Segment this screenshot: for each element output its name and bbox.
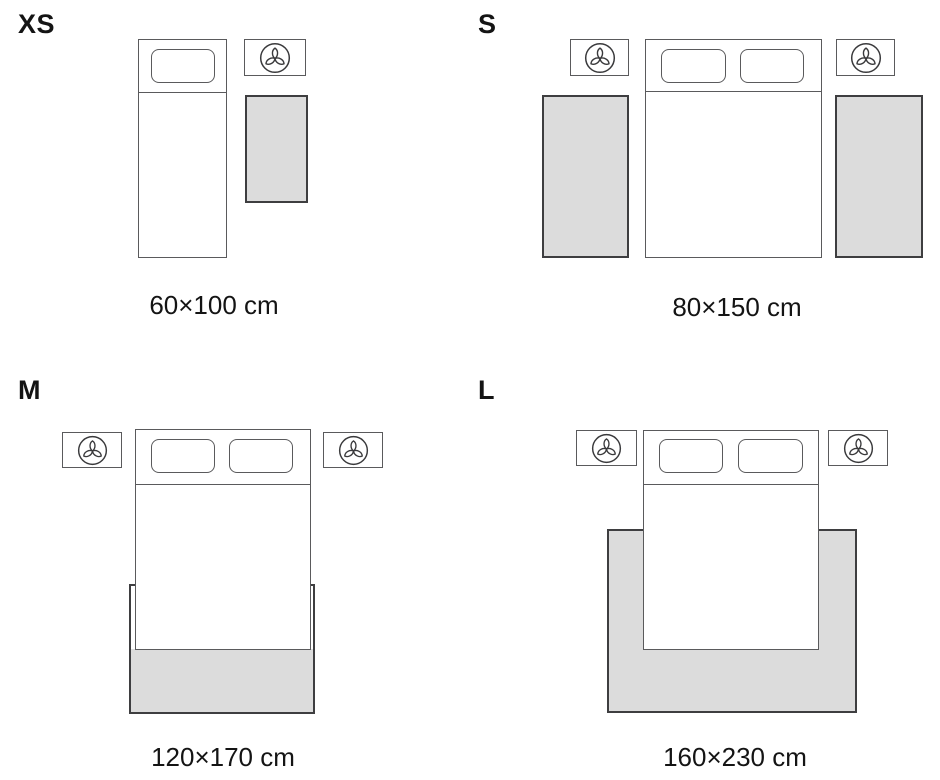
nightstand	[244, 39, 306, 76]
pillow	[661, 49, 726, 83]
dimension-label: 60×100 cm	[94, 292, 334, 318]
plant-icon	[843, 433, 874, 464]
nightstand-left	[576, 430, 637, 466]
size-label-s: S	[478, 11, 497, 38]
pillow	[229, 439, 293, 473]
nightstand-left	[570, 39, 629, 76]
nightstand-left	[62, 432, 122, 468]
pillow	[740, 49, 804, 83]
size-label-l: L	[478, 377, 495, 404]
plant-icon	[77, 435, 108, 466]
pillow	[151, 439, 215, 473]
nightstand-right	[836, 39, 895, 76]
rug-size-guide-diagram: XS 60×100 cm S	[0, 0, 940, 780]
rug	[245, 95, 308, 203]
size-label-m: M	[18, 377, 41, 404]
dimension-label: 80×150 cm	[617, 294, 857, 320]
plant-icon	[591, 433, 622, 464]
plant-icon	[584, 42, 616, 74]
size-label-xs: XS	[18, 11, 55, 38]
pillow	[659, 439, 723, 473]
plant-icon	[338, 435, 369, 466]
rug-fill	[131, 649, 313, 712]
dimension-label: 120×170 cm	[103, 744, 343, 770]
nightstand-right	[828, 430, 888, 466]
plant-icon	[259, 42, 291, 74]
rug-right	[835, 95, 923, 258]
dimension-label: 160×230 cm	[615, 744, 855, 770]
pillow	[738, 439, 803, 473]
nightstand-right	[323, 432, 383, 468]
pillow	[151, 49, 215, 83]
rug-left	[542, 95, 629, 258]
plant-icon	[850, 42, 882, 74]
